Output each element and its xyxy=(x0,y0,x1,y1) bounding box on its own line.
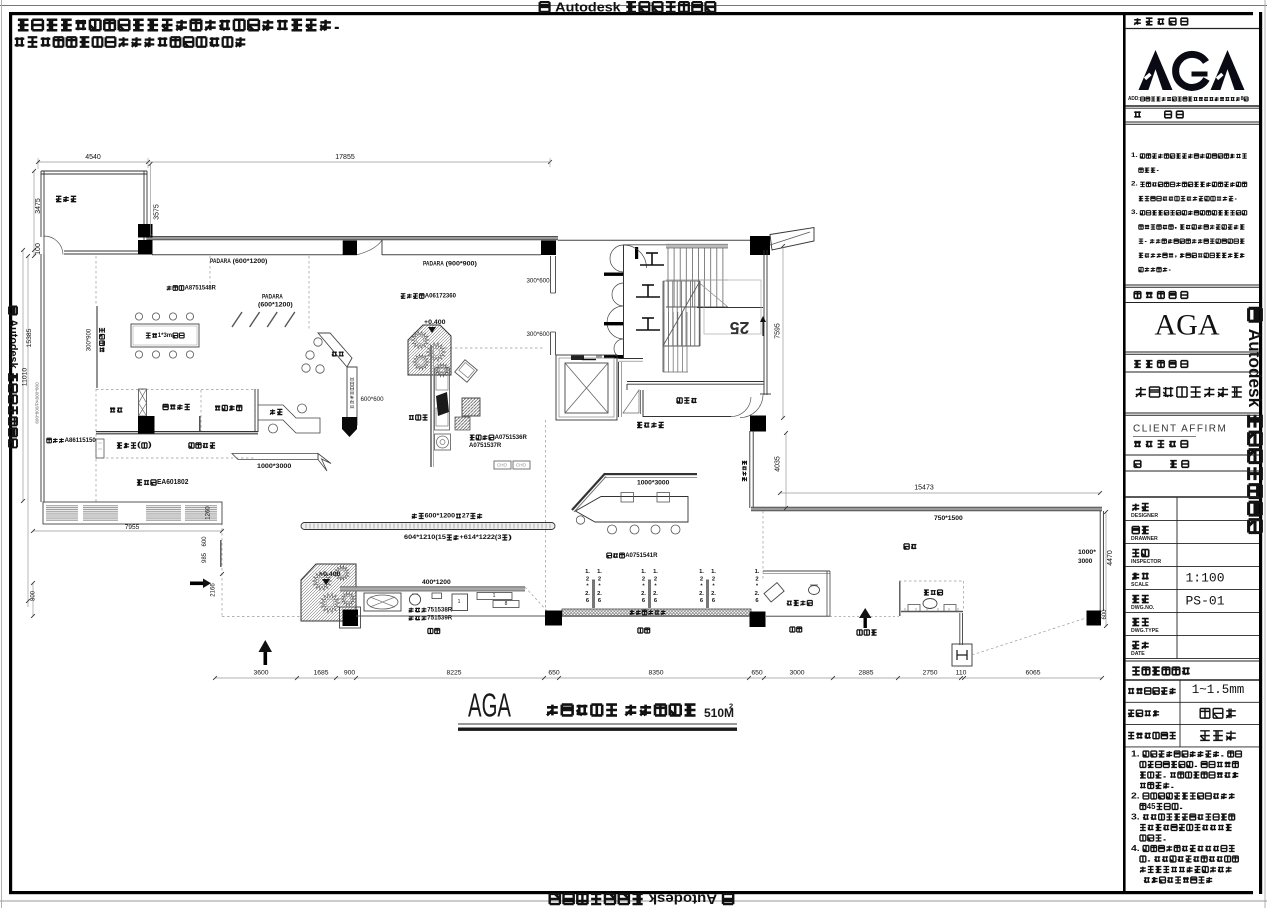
svg-text:3.: 3. xyxy=(1131,210,1138,216)
svg-text:(600*1200): (600*1200) xyxy=(258,302,293,309)
svg-text:2750: 2750 xyxy=(922,670,937,677)
svg-text:4540: 4540 xyxy=(85,154,101,161)
svg-text:1685: 1685 xyxy=(313,670,328,677)
svg-text:AGA: AGA xyxy=(1155,309,1220,342)
svg-text:3.: 3. xyxy=(1131,813,1140,822)
svg-text:A86115150: A86115150 xyxy=(65,437,97,444)
svg-text:17855: 17855 xyxy=(335,154,355,161)
svg-text:1*3m: 1*3m xyxy=(158,332,173,339)
svg-text:600: 600 xyxy=(202,536,208,547)
svg-text:900: 900 xyxy=(344,670,356,677)
svg-text:2.: 2. xyxy=(641,591,646,597)
svg-text:A0751536R: A0751536R xyxy=(495,434,528,441)
svg-text:+0.400: +0.400 xyxy=(319,571,341,578)
svg-text:6065: 6065 xyxy=(1025,670,1040,677)
svg-text:600: 600 xyxy=(1102,609,1108,620)
svg-text:2: 2 xyxy=(700,576,703,582)
svg-text:11010: 11010 xyxy=(22,368,29,387)
svg-text:1.: 1. xyxy=(755,569,760,575)
svg-text:CHO: CHO xyxy=(497,463,507,468)
svg-text:DWG.TYPE: DWG.TYPE xyxy=(1131,628,1159,634)
svg-text:1~1.5mm: 1~1.5mm xyxy=(1192,683,1245,697)
svg-text:300*600: 300*600 xyxy=(526,331,550,338)
svg-text:7595: 7595 xyxy=(775,323,782,339)
svg-text:2.: 2. xyxy=(711,591,716,597)
svg-text:A0751537R: A0751537R xyxy=(469,442,502,449)
svg-text:2166: 2166 xyxy=(211,583,217,597)
svg-text:1.: 1. xyxy=(1131,153,1138,159)
svg-text:1.: 1. xyxy=(597,569,602,575)
svg-text:4.: 4. xyxy=(1131,844,1140,853)
svg-text:2: 2 xyxy=(755,576,758,582)
svg-text:2885: 2885 xyxy=(858,670,873,677)
svg-text:SCALE: SCALE xyxy=(1131,582,1149,588)
svg-text:8: 8 xyxy=(505,601,508,607)
svg-text:CLIENT AFFIRM: CLIENT AFFIRM xyxy=(1133,424,1227,435)
svg-text:.: . xyxy=(1162,834,1166,843)
svg-text:3000: 3000 xyxy=(1078,558,1093,565)
svg-text:2: 2 xyxy=(598,576,601,582)
svg-text:300*600: 300*600 xyxy=(526,278,550,285)
svg-text:1.: 1. xyxy=(585,569,590,575)
svg-text:DATE: DATE xyxy=(1131,651,1145,657)
svg-text:INSPECTOR: INSPECTOR xyxy=(1131,559,1161,565)
svg-text:EA601802: EA601802 xyxy=(157,479,188,486)
svg-text:PADARA: PADARA xyxy=(262,294,283,301)
svg-text:PS-01: PS-01 xyxy=(1185,594,1224,609)
svg-text:2: 2 xyxy=(712,576,715,582)
svg-text:2.: 2. xyxy=(699,591,704,597)
svg-text:A0751541R: A0751541R xyxy=(625,552,658,559)
svg-text:2: 2 xyxy=(729,702,733,711)
svg-text:2.: 2. xyxy=(597,591,602,597)
svg-text:2: 2 xyxy=(654,576,657,582)
svg-text:Autodesk: Autodesk xyxy=(1245,329,1265,408)
svg-text:2.: 2. xyxy=(585,591,590,597)
svg-text:1: 1 xyxy=(458,599,461,605)
svg-text:Autodesk: Autodesk xyxy=(555,0,621,15)
svg-text:): ) xyxy=(148,442,152,449)
svg-text:2.: 2. xyxy=(1131,181,1138,187)
svg-text:400*1200: 400*1200 xyxy=(422,579,451,586)
svg-text:Autodesk: Autodesk xyxy=(7,319,19,369)
svg-text:1260: 1260 xyxy=(206,506,212,520)
svg-text:+0.400: +0.400 xyxy=(424,319,446,326)
svg-text:650: 650 xyxy=(751,670,763,677)
svg-text:7955: 7955 xyxy=(125,524,140,531)
svg-text:3000: 3000 xyxy=(789,670,804,677)
svg-text:ADD:: ADD: xyxy=(1128,96,1140,102)
svg-text:DRAWNER: DRAWNER xyxy=(1131,536,1158,542)
svg-text:2: 2 xyxy=(642,576,645,582)
svg-text:1.: 1. xyxy=(699,569,704,575)
svg-text:751538R: 751538R xyxy=(427,607,452,614)
svg-text:1:100: 1:100 xyxy=(1185,571,1224,586)
svg-text:15473: 15473 xyxy=(914,485,934,492)
svg-text:.: . xyxy=(1220,750,1224,759)
svg-text:A06172360: A06172360 xyxy=(425,293,457,300)
svg-text:.: . xyxy=(1162,771,1166,780)
svg-text:1.: 1. xyxy=(641,569,646,575)
svg-text:300*900: 300*900 xyxy=(87,328,93,351)
svg-text:1.: 1. xyxy=(1131,750,1140,759)
svg-text:750*1500: 750*1500 xyxy=(934,515,963,522)
svg-text:15385: 15385 xyxy=(26,328,33,347)
svg-text:110: 110 xyxy=(956,670,967,677)
svg-text:650: 650 xyxy=(548,670,560,677)
svg-text:DWG.NO.: DWG.NO. xyxy=(1131,605,1155,611)
svg-text:100: 100 xyxy=(35,243,42,255)
svg-text:2: 2 xyxy=(586,576,589,582)
svg-text:3575: 3575 xyxy=(154,204,161,220)
svg-text:2.: 2. xyxy=(755,591,760,597)
svg-text:1.: 1. xyxy=(653,569,658,575)
svg-text:1000*3000: 1000*3000 xyxy=(257,463,292,470)
svg-text:(900*900): (900*900) xyxy=(446,261,477,268)
svg-text:1: 1 xyxy=(493,593,496,599)
svg-text:A8751548R: A8751548R xyxy=(185,285,217,292)
svg-text:.: . xyxy=(333,17,341,33)
svg-text:600*800/PA800*800: 600*800/PA800*800 xyxy=(35,382,40,424)
svg-text:.: . xyxy=(1147,855,1151,864)
svg-text:8225: 8225 xyxy=(446,670,461,677)
svg-text:AGA: AGA xyxy=(468,687,511,724)
svg-text:45: 45 xyxy=(1147,802,1156,811)
svg-text:1000*: 1000* xyxy=(1078,549,1096,556)
svg-text:2.: 2. xyxy=(653,591,658,597)
svg-text:800: 800 xyxy=(31,590,37,601)
svg-text:PADARA: PADARA xyxy=(210,258,231,265)
svg-text:604*1210(15: 604*1210(15 xyxy=(404,534,446,541)
svg-text:3600: 3600 xyxy=(253,670,268,677)
svg-text:600*600: 600*600 xyxy=(360,396,384,403)
svg-text:(600*1200): (600*1200) xyxy=(233,258,268,265)
svg-text:CHO: CHO xyxy=(516,463,526,468)
svg-text:PADARA: PADARA xyxy=(423,261,444,268)
svg-text:1.: 1. xyxy=(711,569,716,575)
svg-text:+614*1222(3: +614*1222(3 xyxy=(460,534,502,541)
svg-text:3475: 3475 xyxy=(35,198,42,214)
svg-text:1000*3000: 1000*3000 xyxy=(637,480,670,487)
svg-text:600*1200: 600*1200 xyxy=(425,513,456,520)
svg-text:4035: 4035 xyxy=(775,456,782,472)
svg-text:.: . xyxy=(1170,781,1174,790)
svg-text:2.: 2. xyxy=(1131,792,1140,801)
svg-text:8350: 8350 xyxy=(648,670,663,677)
svg-text:.: . xyxy=(1179,802,1183,811)
svg-text:27: 27 xyxy=(462,513,470,520)
svg-text:): ) xyxy=(508,534,512,541)
svg-text:25: 25 xyxy=(730,318,750,338)
svg-text:8: 8 xyxy=(1241,96,1244,102)
svg-text:.: . xyxy=(1194,760,1198,769)
svg-text:DESIGNER: DESIGNER xyxy=(1131,513,1158,519)
svg-text:Autodesk: Autodesk xyxy=(648,892,717,907)
svg-text:985: 985 xyxy=(202,552,208,563)
svg-text:4470: 4470 xyxy=(1107,550,1114,566)
